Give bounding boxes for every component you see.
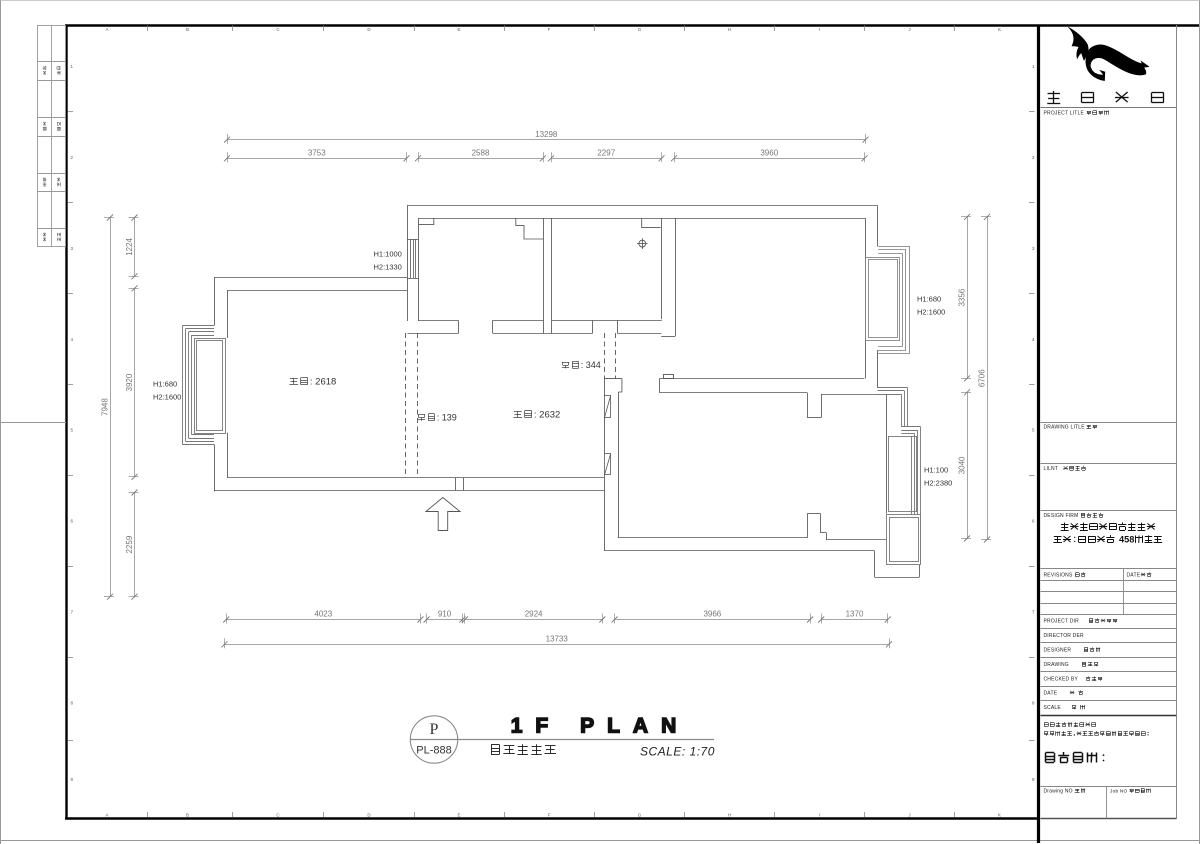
svg-text:H: H [728, 813, 731, 818]
svg-text:3753: 3753 [308, 148, 326, 157]
svg-text:F: F [548, 813, 551, 818]
svg-text:DESIGNER: DESIGNER [1044, 648, 1072, 654]
svg-text:H1:680: H1:680 [153, 380, 177, 389]
svg-text:: 2618: : 2618 [310, 377, 336, 388]
svg-text:3040: 3040 [958, 456, 967, 474]
svg-text:H2:1600: H2:1600 [153, 393, 181, 402]
svg-text:SCALE: SCALE [1044, 705, 1062, 711]
svg-text:K: K [998, 27, 1001, 32]
svg-text:PL-888: PL-888 [416, 745, 451, 757]
svg-text:DIRECTOR DER: DIRECTOR DER [1044, 633, 1085, 639]
svg-text:CHECKED BY: CHECKED BY [1044, 677, 1079, 683]
svg-text:H1:1000: H1:1000 [374, 250, 402, 259]
svg-text:B: B [186, 813, 189, 818]
svg-text:G: G [638, 813, 642, 818]
svg-text:: 139: : 139 [437, 413, 457, 423]
svg-text:: 2632: : 2632 [534, 410, 560, 421]
svg-text:H2:1330: H2:1330 [374, 263, 402, 272]
svg-text:2588: 2588 [472, 148, 490, 157]
svg-text:2924: 2924 [525, 610, 543, 619]
svg-text:E: E [457, 27, 460, 32]
svg-text:3356: 3356 [958, 288, 967, 306]
svg-text:DESIGN FIRM: DESIGN FIRM [1044, 513, 1079, 519]
svg-text:DATE: DATE [1127, 573, 1141, 579]
svg-text:LILNT: LILNT [1044, 466, 1059, 472]
svg-text:REVISIONS: REVISIONS [1044, 573, 1073, 579]
svg-text:1F PLAN: 1F PLAN [511, 715, 690, 738]
svg-text:3920: 3920 [125, 373, 134, 391]
svg-text:1224: 1224 [125, 237, 134, 255]
svg-text:4023: 4023 [314, 610, 332, 619]
svg-text:DRAWING: DRAWING [1044, 662, 1069, 668]
svg-text:DRAWING LITLE: DRAWING LITLE [1044, 425, 1086, 431]
svg-text:PROJECT DIR: PROJECT DIR [1044, 619, 1080, 625]
svg-text:13298: 13298 [535, 130, 558, 139]
svg-text:PROJECT LITLE: PROJECT LITLE [1044, 111, 1085, 117]
svg-text:3960: 3960 [760, 148, 778, 157]
svg-text:B: B [186, 27, 189, 32]
svg-text:J: J [908, 27, 910, 32]
svg-text:Drawing NO: Drawing NO [1044, 789, 1073, 795]
svg-text:P: P [430, 721, 439, 738]
svg-text:A: A [105, 813, 108, 818]
svg-text:13733: 13733 [546, 634, 569, 643]
svg-text:H: H [728, 27, 731, 32]
svg-text:H2:2380: H2:2380 [924, 479, 952, 488]
svg-text:A: A [105, 27, 108, 32]
svg-text:E: E [457, 813, 460, 818]
svg-text:DATE: DATE [1044, 691, 1058, 697]
svg-text:910: 910 [438, 610, 452, 619]
svg-text:H2:1600: H2:1600 [917, 308, 945, 317]
svg-text:3966: 3966 [703, 610, 721, 619]
svg-text:K: K [998, 813, 1001, 818]
svg-text:J: J [908, 813, 910, 818]
svg-text:SCALE: 1:70: SCALE: 1:70 [640, 745, 715, 759]
svg-text:458: 458 [1119, 535, 1134, 545]
svg-text:F: F [548, 27, 551, 32]
svg-text:2259: 2259 [125, 535, 134, 553]
svg-text:I: I [819, 813, 820, 818]
svg-text:I: I [819, 27, 820, 32]
svg-text:Job NO: Job NO [1110, 789, 1128, 795]
svg-text:: 344: : 344 [581, 360, 601, 370]
svg-text:H1:680: H1:680 [917, 295, 941, 304]
svg-text:7948: 7948 [101, 398, 110, 416]
svg-text:6706: 6706 [978, 369, 987, 387]
svg-text:1370: 1370 [846, 610, 864, 619]
svg-text:H1:100: H1:100 [924, 466, 948, 475]
svg-text:G: G [638, 27, 642, 32]
svg-text:2297: 2297 [597, 148, 615, 157]
